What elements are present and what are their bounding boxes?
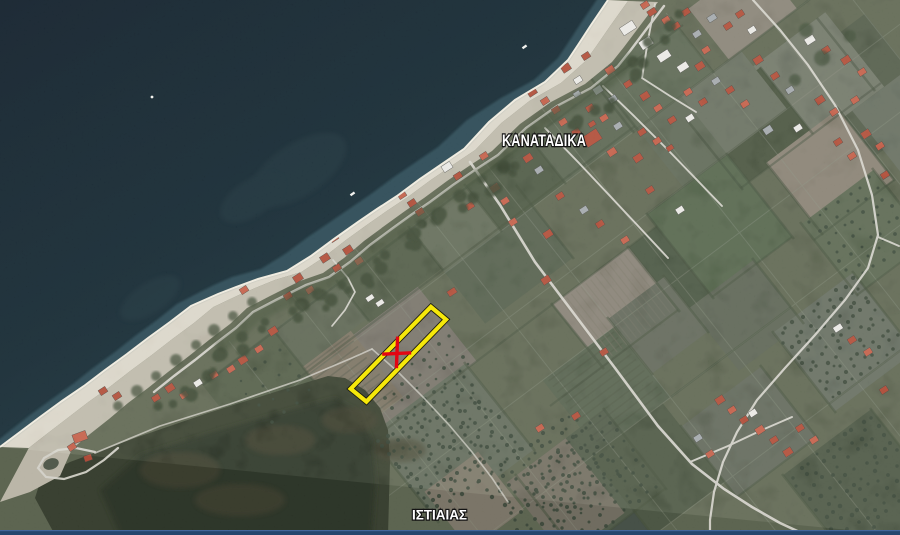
svg-text:ΙΣΤΙΑΙΑΣ: ΙΣΤΙΑΙΑΣ: [412, 507, 467, 523]
svg-text:ΚΑΝΑΤΑΔΙΚΑ: ΚΑΝΑΤΑΔΙΚΑ: [502, 132, 586, 150]
